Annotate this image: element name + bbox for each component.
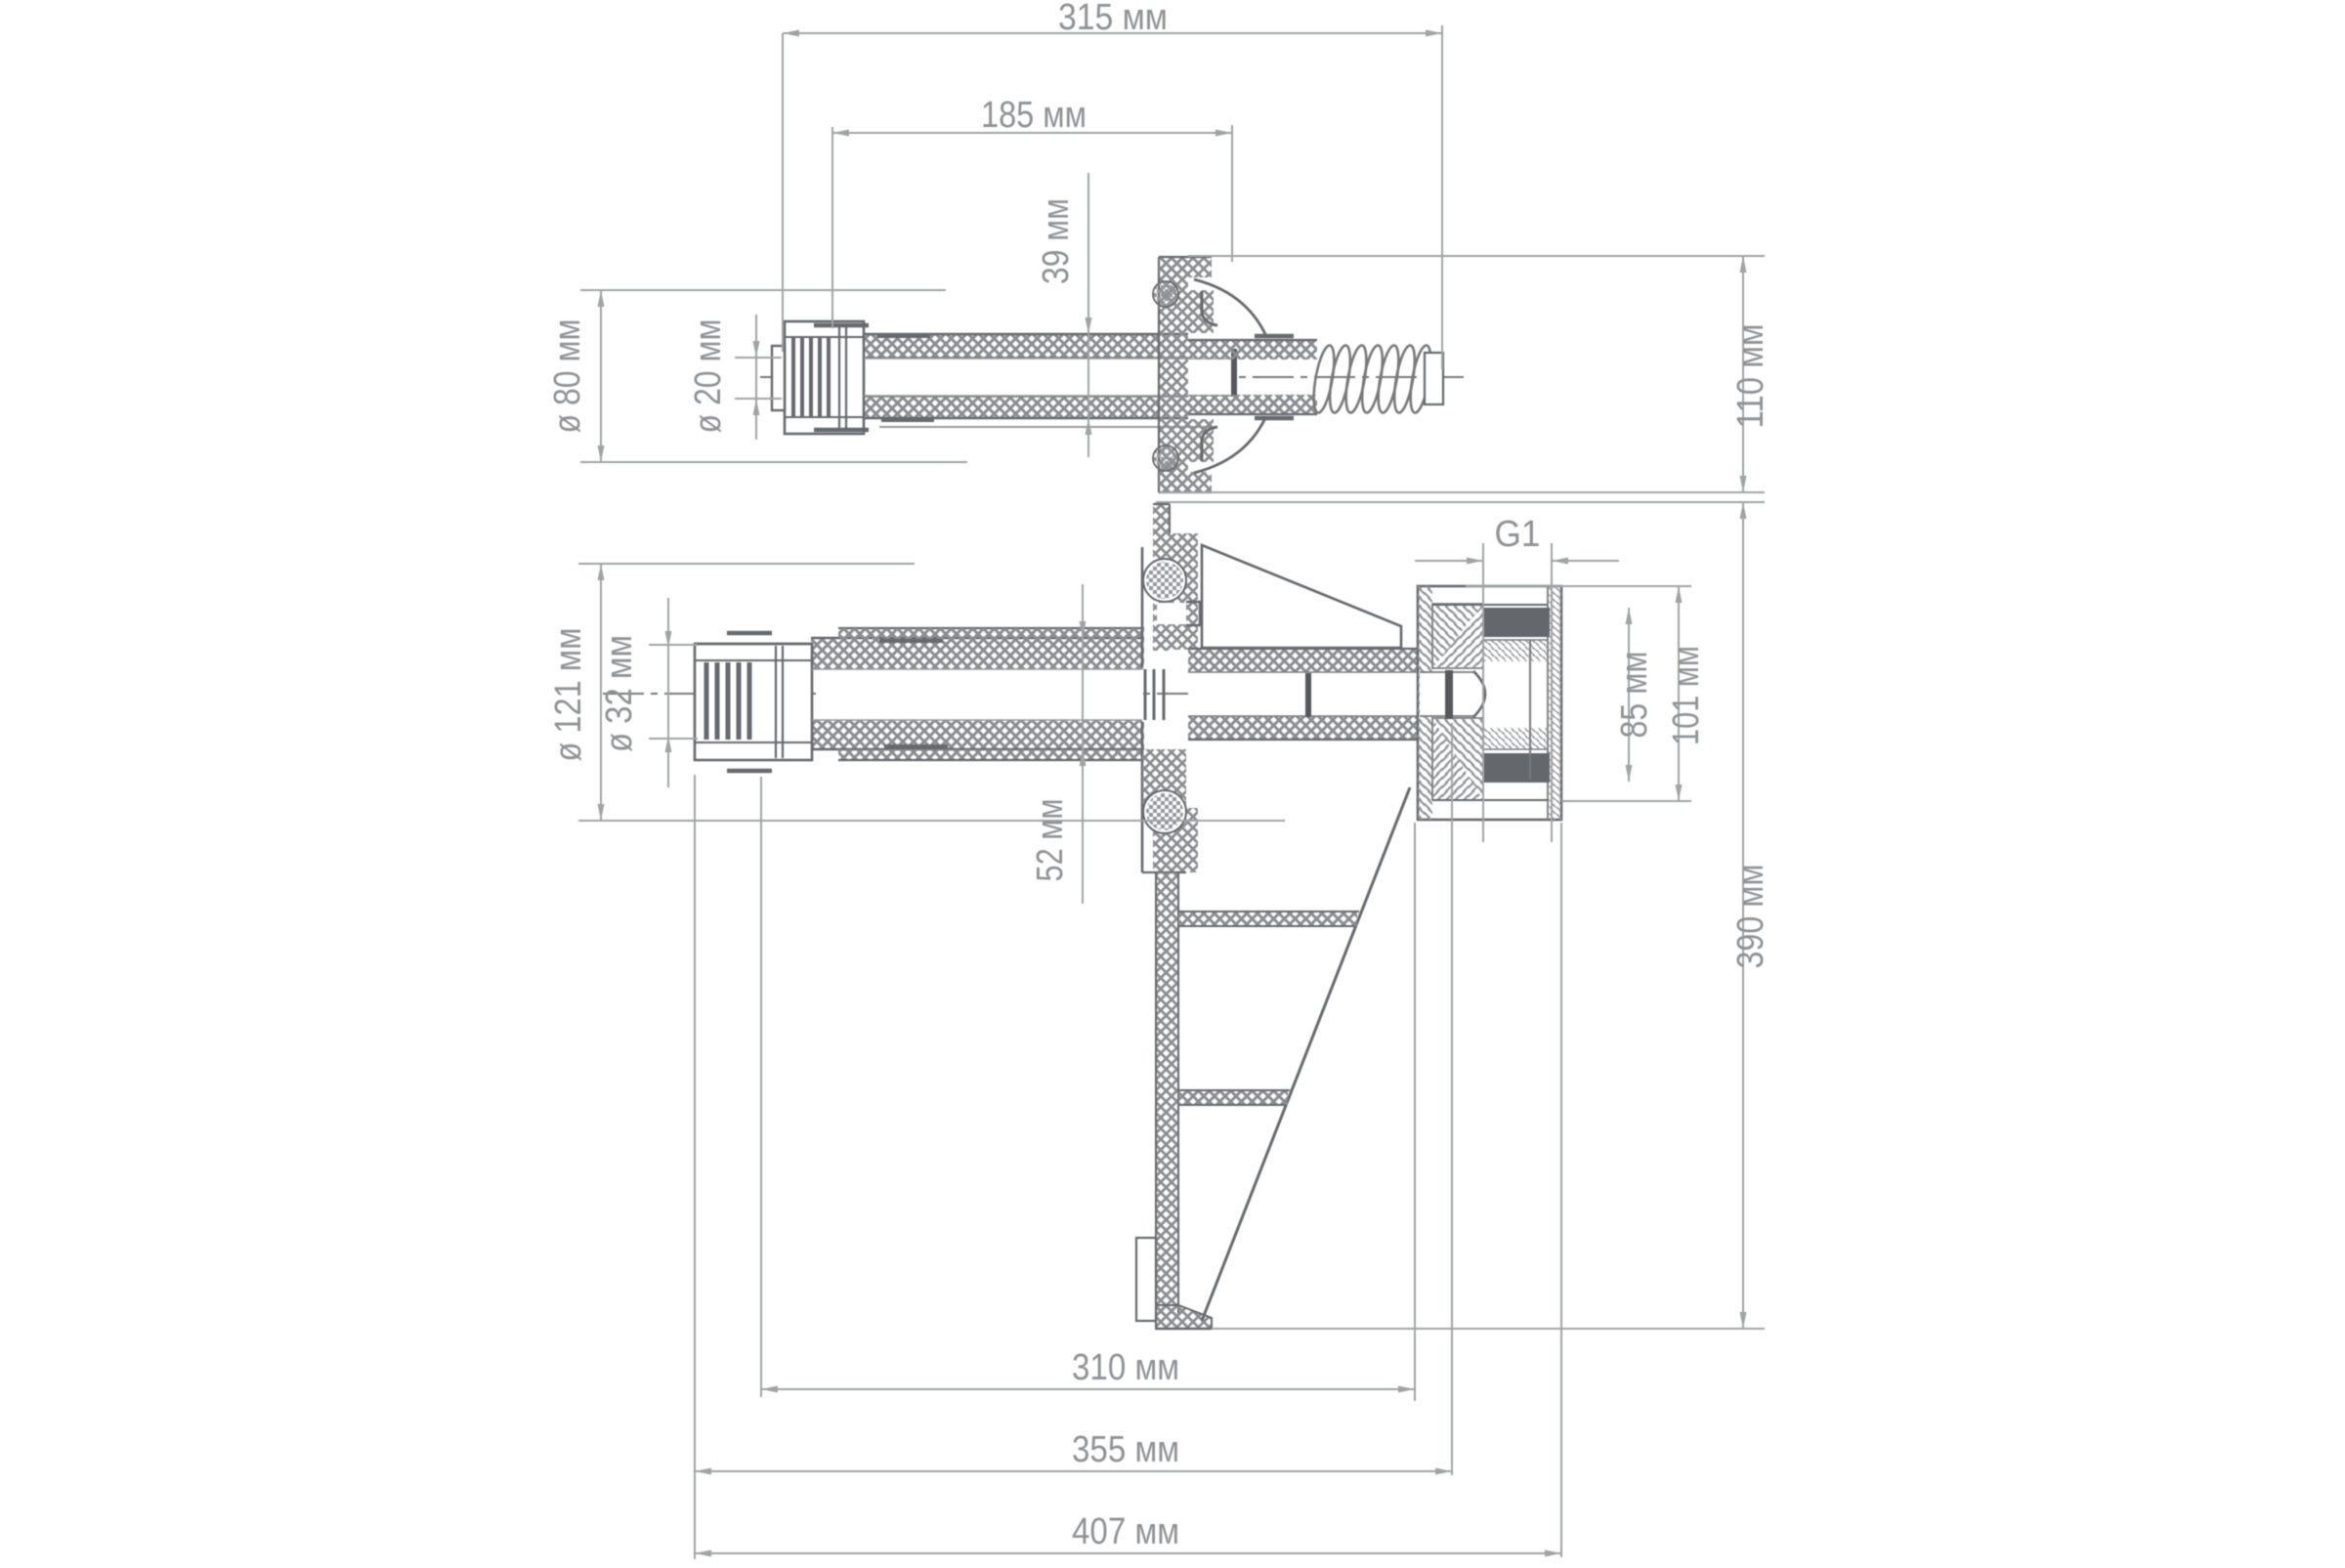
- svg-text:ø 121 мм: ø 121 мм: [548, 628, 589, 762]
- svg-text:407 мм: 407 мм: [1072, 1511, 1179, 1552]
- svg-text:ø 20 мм: ø 20 мм: [688, 319, 729, 434]
- svg-text:390 мм: 390 мм: [1730, 865, 1771, 969]
- svg-text:ø 80 мм: ø 80 мм: [547, 319, 588, 434]
- svg-text:310 мм: 310 мм: [1072, 1347, 1179, 1388]
- svg-text:315 мм: 315 мм: [1058, 0, 1168, 38]
- svg-text:185 мм: 185 мм: [981, 95, 1087, 136]
- svg-text:110 мм: 110 мм: [1730, 324, 1771, 429]
- svg-text:39 мм: 39 мм: [1036, 198, 1077, 284]
- svg-text:52 мм: 52 мм: [1030, 799, 1071, 882]
- svg-text:G1: G1: [1495, 514, 1541, 555]
- svg-text:101 мм: 101 мм: [1666, 646, 1707, 745]
- svg-text:ø 32 мм: ø 32 мм: [599, 635, 640, 752]
- svg-text:355 мм: 355 мм: [1072, 1429, 1179, 1470]
- svg-text:85 мм: 85 мм: [1614, 652, 1655, 739]
